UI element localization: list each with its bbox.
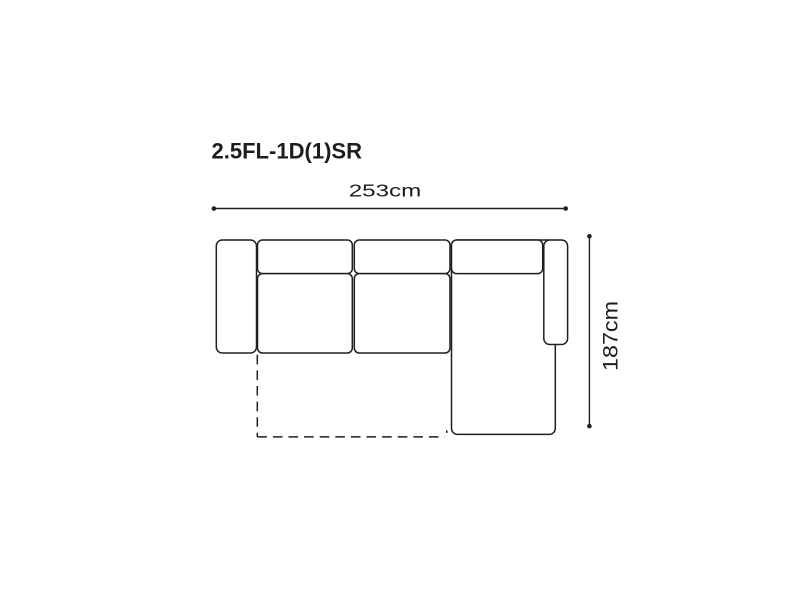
svg-text:2.5FL-1D(1)SR: 2.5FL-1D(1)SR <box>212 139 363 164</box>
svg-text:253cm: 253cm <box>349 181 422 201</box>
svg-text:187cm: 187cm <box>600 301 623 371</box>
